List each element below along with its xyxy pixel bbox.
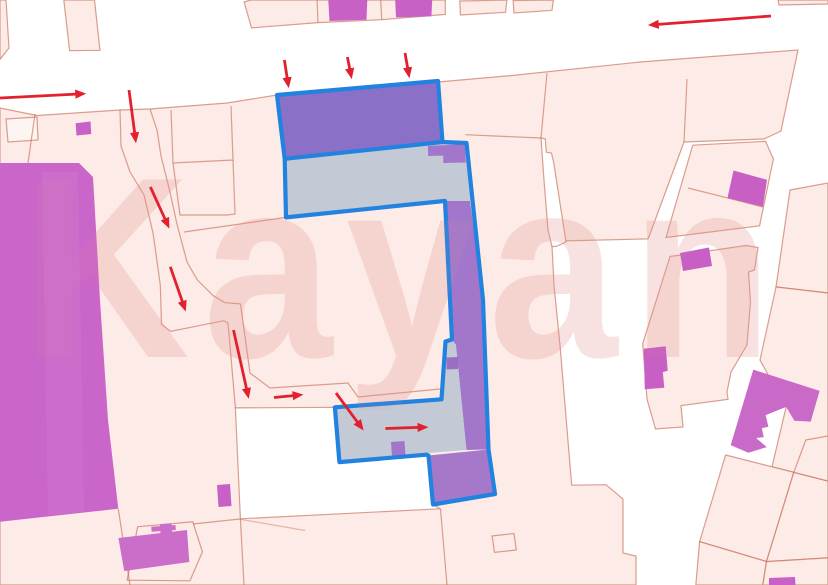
svg-text:Kayan: Kayan (22, 125, 786, 413)
